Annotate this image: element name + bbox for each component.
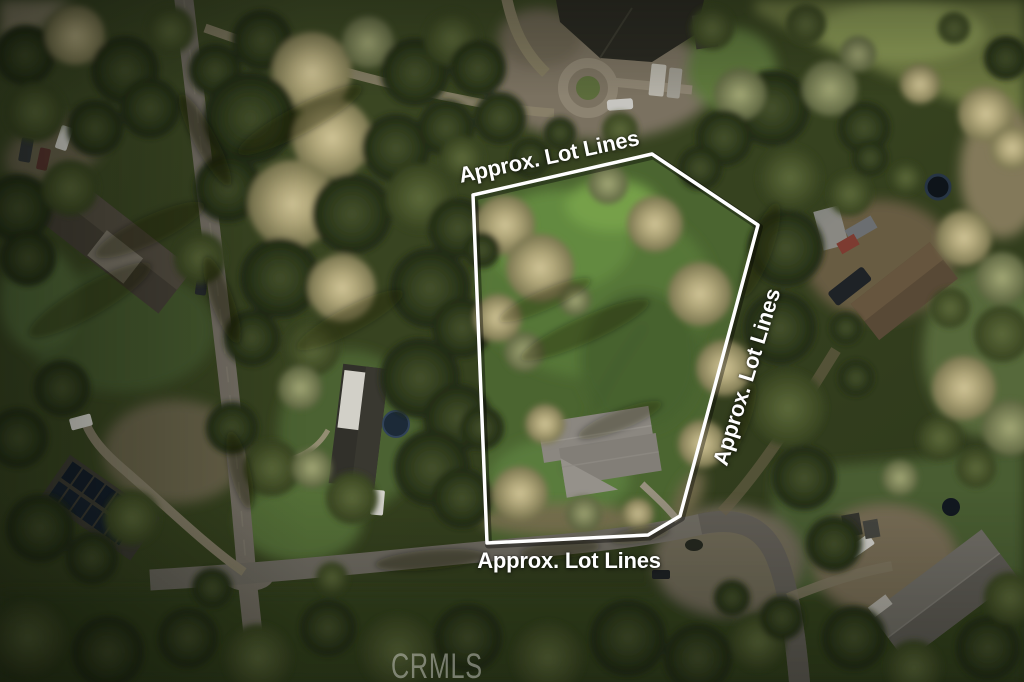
lot-lines-label-bottom: Approx. Lot Lines: [477, 550, 661, 572]
vignette-top: [0, 0, 1024, 682]
crmls-watermark: CRMLS: [391, 649, 483, 682]
aerial-photo: Approx. Lot Lines Approx. Lot Lines Appr…: [0, 0, 1024, 682]
aerial-scene: [0, 0, 1024, 682]
